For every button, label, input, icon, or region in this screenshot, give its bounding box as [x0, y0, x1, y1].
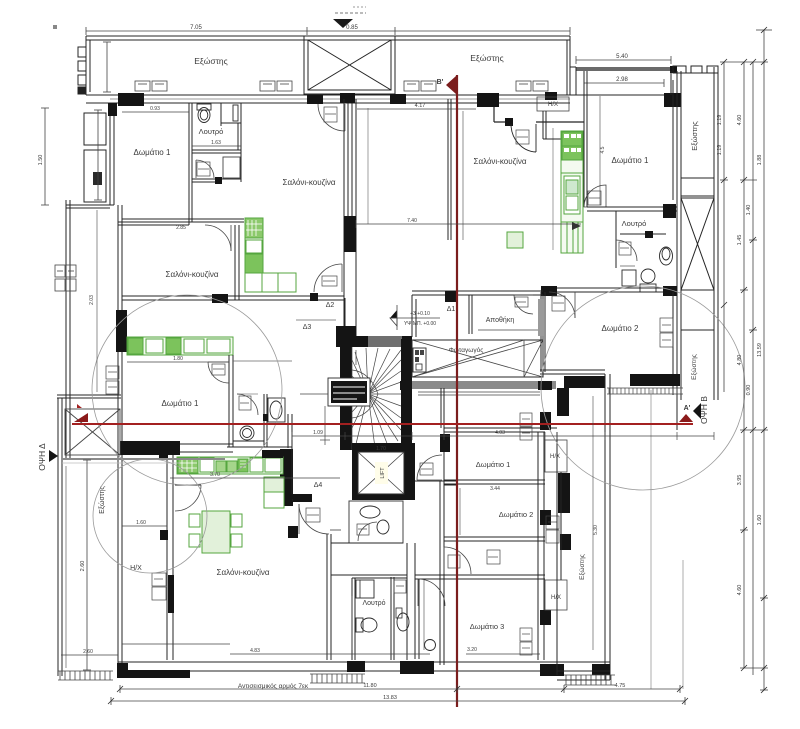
svg-text:LIFT: LIFT [380, 467, 386, 479]
svg-text:1.40: 1.40 [746, 205, 752, 216]
svg-text:Σαλόνι-κουζίνα: Σαλόνι-κουζίνα [217, 568, 270, 577]
svg-text:2.60: 2.60 [83, 649, 93, 655]
svg-text:1.60: 1.60 [757, 515, 763, 526]
svg-text:4.83: 4.83 [250, 648, 260, 654]
svg-text:Σαλόνι-κουζίνα: Σαλόνι-κουζίνα [283, 178, 336, 187]
svg-text:Β': Β' [437, 79, 444, 86]
svg-text:Σαλόνι-κουζίνα: Σαλόνι-κουζίνα [474, 157, 527, 166]
svg-text:7.05: 7.05 [190, 25, 202, 31]
svg-text:0.85: 0.85 [346, 25, 358, 31]
svg-text:1.09: 1.09 [313, 430, 323, 436]
svg-text:Δ2: Δ2 [326, 302, 335, 309]
svg-text:ΟΨΗ Δ: ΟΨΗ Δ [37, 443, 47, 471]
svg-text:1.70: 1.70 [376, 446, 386, 452]
svg-text:Λουτρό: Λουτρό [622, 219, 647, 228]
svg-text:Λουτρό: Λουτρό [199, 127, 224, 136]
svg-text:2.03: 2.03 [89, 295, 95, 305]
svg-text:0.93: 0.93 [150, 106, 160, 112]
svg-text:2.85: 2.85 [176, 225, 186, 231]
svg-text:Δωμάτιο 2: Δωμάτιο 2 [602, 324, 639, 333]
svg-text:4.60: 4.60 [737, 115, 743, 126]
svg-text:3.95: 3.95 [737, 475, 743, 486]
svg-text:3.70: 3.70 [210, 472, 220, 478]
svg-text:1.45: 1.45 [737, 235, 743, 246]
svg-text:Φωταγωγός: Φωταγωγός [449, 346, 484, 354]
svg-text:1.19: 1.19 [717, 115, 723, 126]
svg-text:Δωμάτιο 1: Δωμάτιο 1 [476, 460, 511, 469]
svg-text:4.03: 4.03 [495, 430, 505, 436]
svg-text:13.83: 13.83 [383, 695, 397, 701]
svg-text:5.40: 5.40 [616, 54, 628, 60]
svg-text:Η/Χ: Η/Χ [550, 454, 560, 460]
svg-text:Δωμάτιο 1: Δωμάτιο 1 [134, 148, 171, 157]
svg-text:Αποθήκη: Αποθήκη [486, 317, 515, 324]
svg-text:11.80: 11.80 [363, 683, 376, 689]
svg-text:Εξώστης: Εξώστης [690, 354, 698, 380]
svg-text:Δ3: Δ3 [303, 324, 312, 331]
svg-text:+3 +0.10: +3 +0.10 [410, 311, 430, 317]
svg-text:Α': Α' [684, 405, 691, 412]
svg-text:Δ4: Δ4 [314, 482, 323, 489]
svg-text:Η/Χ: Η/Χ [551, 595, 561, 601]
svg-text:Σαλόνι-κουζίνα: Σαλόνι-κουζίνα [166, 270, 219, 279]
svg-text:1.50: 1.50 [38, 155, 44, 166]
svg-text:1.60: 1.60 [136, 520, 146, 526]
svg-text:5.30: 5.30 [593, 525, 599, 535]
svg-text:ΥΨ.ΜΠ. +0.00: ΥΨ.ΜΠ. +0.00 [404, 321, 436, 327]
svg-text:3.20: 3.20 [467, 647, 477, 653]
svg-text:3.44: 3.44 [490, 486, 500, 492]
svg-text:7.40: 7.40 [407, 218, 417, 224]
svg-text:1.19: 1.19 [717, 145, 723, 156]
svg-text:Αντισεισμικός αρμός 7εκ: Αντισεισμικός αρμός 7εκ [238, 682, 309, 690]
svg-text:Εξώστης: Εξώστης [690, 121, 699, 151]
svg-text:Εξώστης: Εξώστης [578, 554, 586, 580]
svg-text:Εξώστης: Εξώστης [470, 53, 504, 63]
svg-text:2.98: 2.98 [616, 77, 628, 83]
svg-text:Η/Χ: Η/Χ [548, 102, 558, 108]
svg-text:1.63: 1.63 [211, 140, 221, 146]
svg-text:Εξώστης: Εξώστης [194, 56, 228, 66]
svg-text:Δωμάτιο 3: Δωμάτιο 3 [470, 622, 505, 631]
svg-text:2.60: 2.60 [80, 561, 86, 572]
svg-text:4.80: 4.80 [737, 355, 743, 366]
svg-text:Δ1: Δ1 [447, 306, 456, 313]
svg-text:4.75: 4.75 [615, 683, 626, 689]
svg-text:Λουτρό: Λουτρό [362, 599, 385, 607]
svg-text:Δωμάτιο 2: Δωμάτιο 2 [499, 510, 534, 519]
svg-text:Δωμάτιο 1: Δωμάτιο 1 [612, 156, 649, 165]
svg-text:1.88: 1.88 [757, 155, 763, 166]
svg-text:4.5: 4.5 [600, 146, 606, 153]
svg-text:1.80: 1.80 [173, 356, 183, 362]
svg-text:4.17: 4.17 [415, 103, 426, 109]
svg-text:Δωμάτιο 1: Δωμάτιο 1 [162, 399, 199, 408]
svg-text:13.59: 13.59 [757, 343, 763, 357]
svg-text:0.90: 0.90 [746, 385, 752, 396]
svg-text:ΟΨΗ Β: ΟΨΗ Β [699, 396, 709, 424]
svg-text:4.60: 4.60 [737, 585, 743, 596]
